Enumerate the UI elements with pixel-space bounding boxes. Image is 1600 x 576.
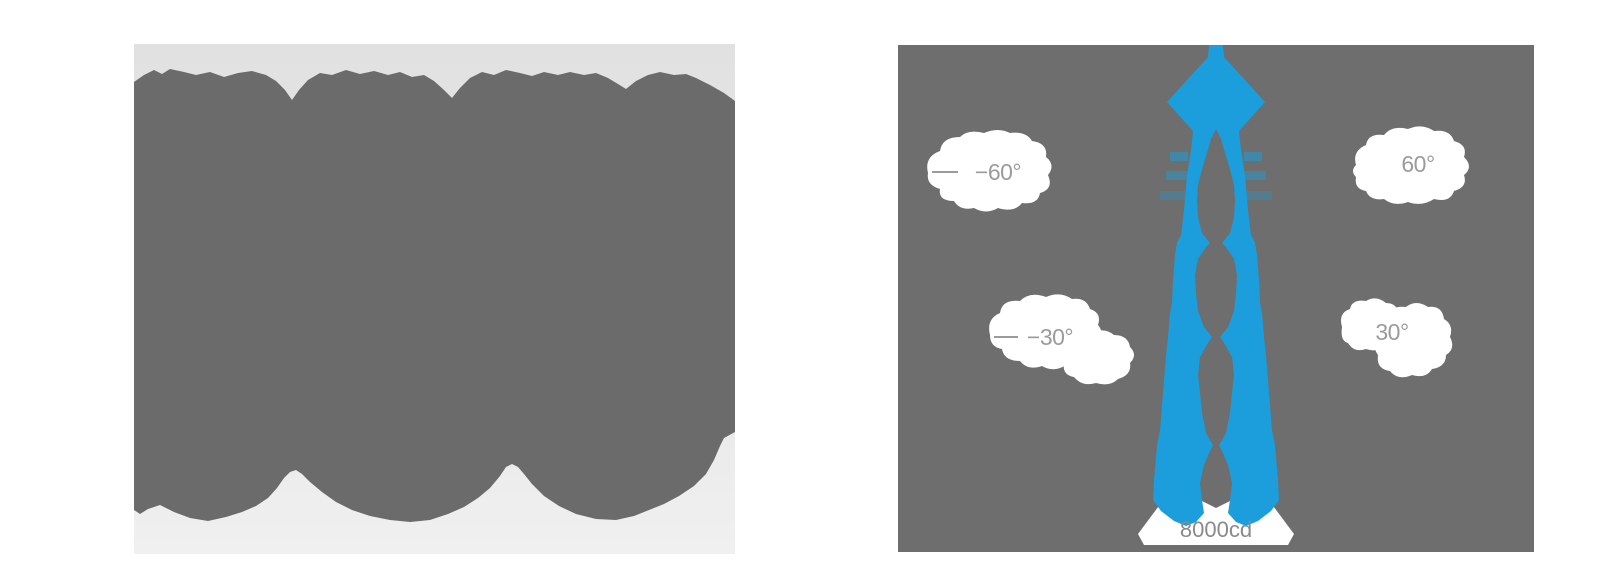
product-image-blob-canvas [134,44,735,554]
blurred-product-blob [134,69,735,522]
page: −60° 60° −30° 30° 8000cd [0,0,1600,576]
angle-label-plus30: 30° [1375,319,1408,345]
candela-label: 8000cd [1180,517,1252,542]
angle-label-minus60: −60° [975,159,1021,185]
beam-shape [1153,45,1279,526]
angle-label-minus30: −30° [1027,324,1073,350]
polar-diagram-canvas: −60° 60° −30° 30° 8000cd [898,45,1534,552]
beam-scale-ticks [1160,152,1272,200]
beam [1153,45,1279,526]
product-image-panel [134,44,735,554]
angle-label-plus60: 60° [1401,151,1434,177]
polar-diagram-panel: −60° 60° −30° 30° 8000cd [898,45,1534,552]
